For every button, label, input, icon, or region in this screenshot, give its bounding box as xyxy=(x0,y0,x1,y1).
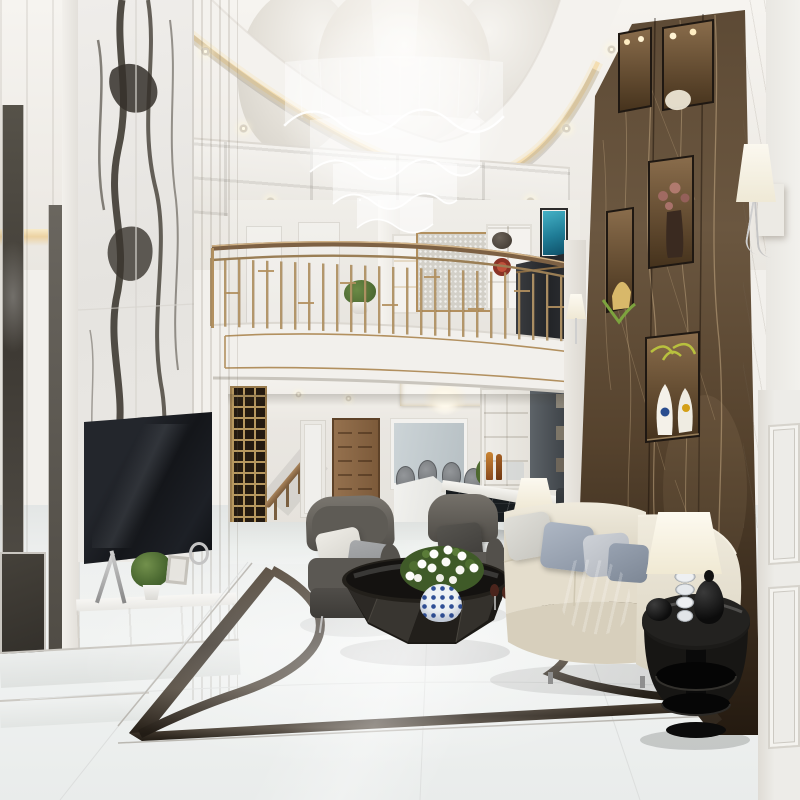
railing-accent xyxy=(382,304,398,306)
door-panel xyxy=(768,423,800,565)
porcelain-vase xyxy=(420,584,462,622)
sconce-shade xyxy=(736,144,776,202)
wine-bottle xyxy=(496,454,502,480)
door-panel xyxy=(768,585,800,749)
railing-handrail xyxy=(208,236,583,298)
railing-accent xyxy=(298,302,314,304)
decor-bowl xyxy=(646,598,672,621)
decor-jar xyxy=(694,580,724,624)
crystal-chandelier xyxy=(275,0,515,245)
panel-door xyxy=(758,390,800,800)
decor-jar-knob xyxy=(704,570,714,582)
interior-photo xyxy=(0,0,800,800)
chair-leg xyxy=(319,616,323,633)
ceiling-spotlight xyxy=(239,124,248,133)
sconce-stem xyxy=(575,318,577,344)
lamp-shade xyxy=(646,512,722,574)
wall-sconce xyxy=(732,140,788,265)
tv-screen-reflection xyxy=(92,424,204,548)
wine-bottle xyxy=(486,452,493,480)
railing-accent xyxy=(468,308,484,310)
